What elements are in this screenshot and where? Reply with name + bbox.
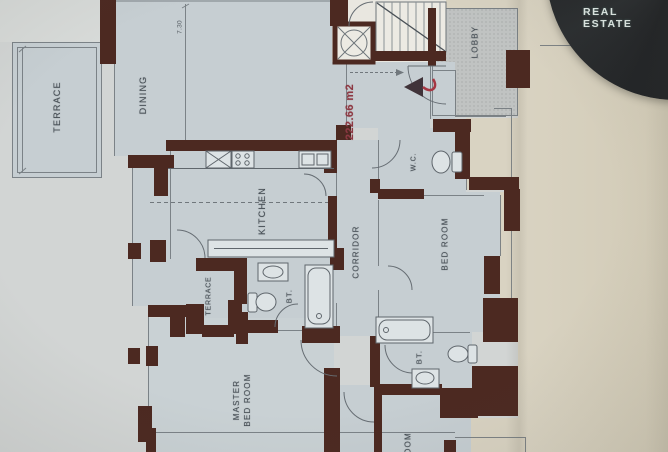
wc-toilet-bowl <box>432 151 450 173</box>
label-corridor: CORRIDOR <box>352 225 361 278</box>
label-kitchen: KITCHEN <box>257 187 267 235</box>
bath2-toilet-bowl <box>448 346 468 362</box>
label-master-line1: MASTER <box>231 373 242 426</box>
label-bath1: BT. <box>285 289 294 303</box>
label-dimension-top: 7.30 <box>177 20 184 34</box>
label-total-area: 222.66 m2 <box>344 84 356 140</box>
elevator <box>335 24 373 62</box>
stairs-direction-arrow <box>396 69 404 76</box>
label-bath2: BT. <box>415 350 424 364</box>
dashed-lines <box>150 73 396 203</box>
label-terrace-small: TERRACE <box>206 276 213 315</box>
label-room-partial: ROOM <box>404 432 413 452</box>
label-master-line2: BED ROOM <box>242 373 253 426</box>
real-estate-logo-text: REAL ESTATE <box>583 6 668 30</box>
wc-toilet-tank <box>452 152 462 172</box>
plan-linework <box>0 0 668 452</box>
bath2-toilet-tank <box>468 345 477 363</box>
kitchen-hob <box>232 151 254 168</box>
bath2-tub <box>376 317 433 343</box>
thin-lines <box>13 1 668 452</box>
label-master-bedroom: MASTERBED ROOM <box>231 373 253 426</box>
label-wc: W.C. <box>411 153 418 171</box>
label-lobby: LOBBY <box>471 26 480 59</box>
bath1-toilet-bowl <box>256 293 276 311</box>
label-terrace: TERRACE <box>52 81 62 132</box>
door-arcs <box>177 2 446 422</box>
floor-plan-photo: TERRACE DINING KITCHEN CORRIDOR LOBBY W.… <box>0 0 668 452</box>
label-bedroom: BED ROOM <box>441 217 450 270</box>
label-dining: DINING <box>138 76 148 115</box>
walls <box>100 0 530 452</box>
